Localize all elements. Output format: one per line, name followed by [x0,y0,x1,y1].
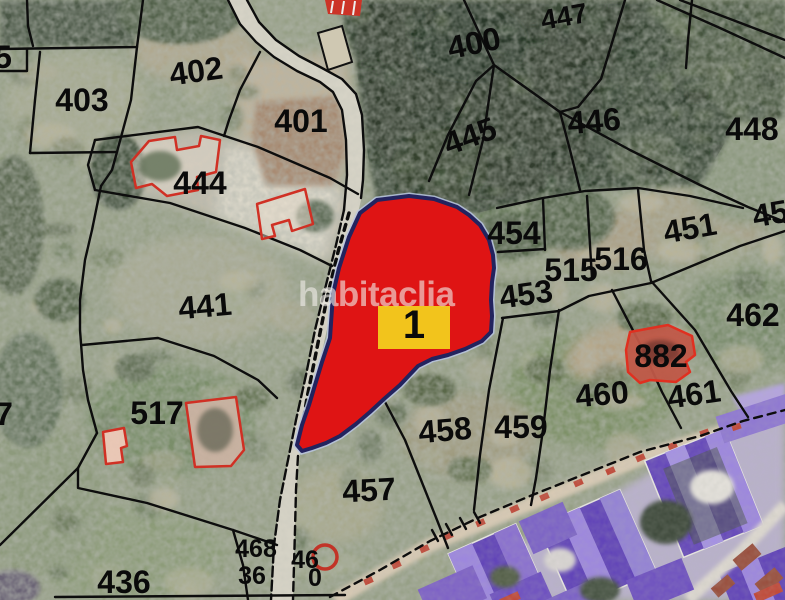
svg-text:459: 459 [494,409,547,445]
svg-text:446: 446 [566,101,622,142]
svg-text:36: 36 [238,562,266,590]
svg-text:444: 444 [173,165,227,201]
svg-text:7: 7 [0,396,13,432]
svg-text:457: 457 [341,471,396,510]
svg-text:0: 0 [308,564,322,592]
svg-text:habitaclia: habitaclia [298,275,455,314]
svg-text:882: 882 [634,338,687,374]
svg-text:460: 460 [574,374,630,415]
svg-text:401: 401 [274,103,327,139]
svg-text:454: 454 [487,215,541,251]
svg-text:403: 403 [55,82,108,118]
svg-text:516: 516 [594,241,647,277]
svg-text:517: 517 [130,395,183,431]
svg-text:453: 453 [497,272,555,315]
svg-text:402: 402 [167,49,225,92]
svg-text:462: 462 [726,297,779,333]
svg-text:5: 5 [0,39,12,75]
svg-text:461: 461 [665,372,723,415]
svg-text:458: 458 [417,410,473,451]
svg-text:436: 436 [97,564,150,600]
svg-text:441: 441 [177,286,233,327]
svg-text:515: 515 [544,252,597,288]
svg-text:468: 468 [235,535,277,563]
svg-text:448: 448 [725,111,778,147]
